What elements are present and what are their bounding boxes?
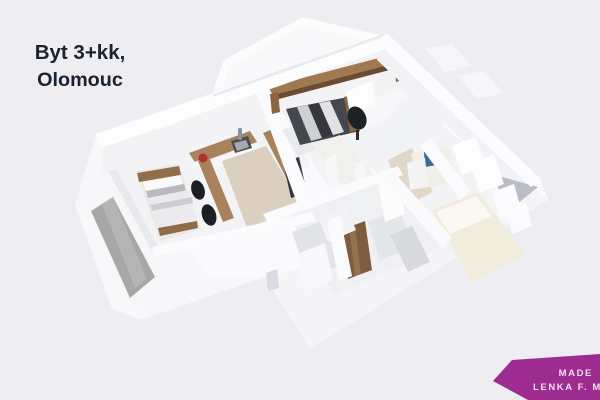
svg-text:Olomouc: Olomouc [37, 69, 123, 91]
svg-text:Byt 3+kk,: Byt 3+kk, [35, 41, 126, 64]
svg-text:MADE: MADE [559, 368, 593, 379]
svg-text:LENKA F. MAL: LENKA F. MAL [533, 382, 600, 393]
